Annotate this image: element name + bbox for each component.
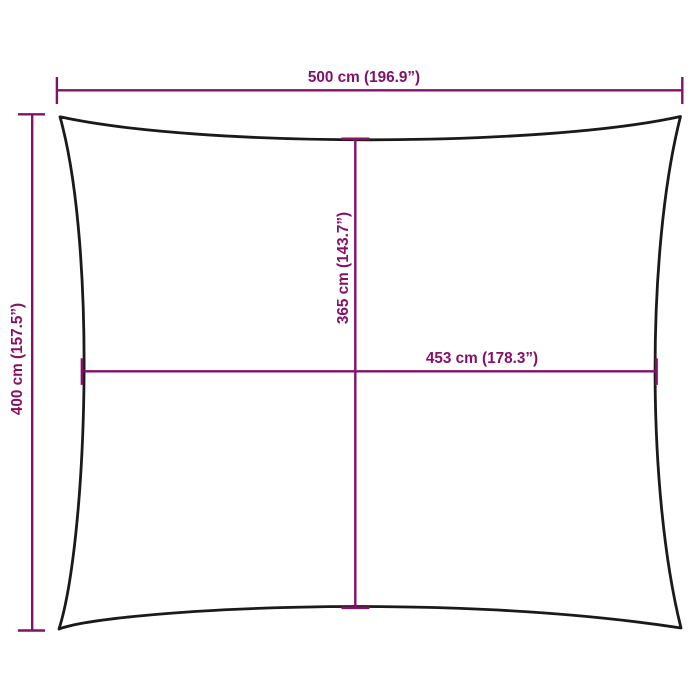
- svg-text:365 cm (143.7”): 365 cm (143.7”): [335, 212, 352, 324]
- svg-text:400 cm (157.5”): 400 cm (157.5”): [9, 303, 26, 415]
- svg-text:500 cm (196.9”): 500 cm (196.9”): [308, 69, 420, 86]
- svg-text:453 cm (178.3”): 453 cm (178.3”): [426, 350, 538, 367]
